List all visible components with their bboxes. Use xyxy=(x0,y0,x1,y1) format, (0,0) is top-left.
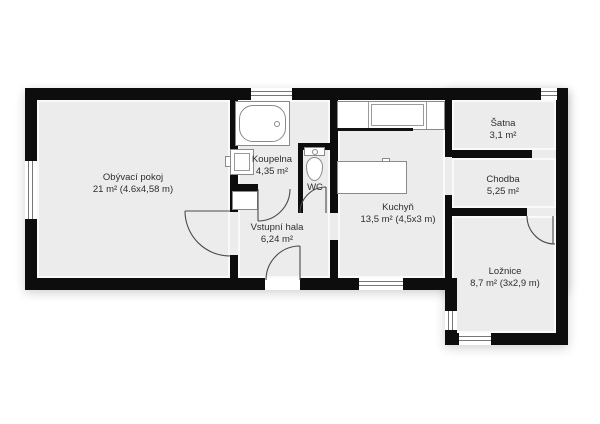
label-loznice: Ložnice 8,7 m² (3x2,9 m) xyxy=(470,266,540,290)
room-name: Chodba xyxy=(486,174,519,186)
room-name: Kuchyň xyxy=(361,202,436,214)
room-area: 13,5 m² (4,5x3 m) xyxy=(361,214,436,226)
door-obyvaci-icon xyxy=(185,211,230,256)
room-name: WC xyxy=(307,182,323,194)
room-name: Koupelna xyxy=(252,154,292,166)
label-koupelna: Koupelna 4,35 m² xyxy=(252,154,292,178)
label-satna: Šatna 3,1 m² xyxy=(490,118,517,142)
door-koupelna-icon xyxy=(258,189,290,221)
floor-plan: Obývací pokoj 21 m² (4.6x4,58 m) Koupeln… xyxy=(0,0,600,424)
door-loznice-icon xyxy=(527,216,555,244)
room-name: Šatna xyxy=(490,118,517,130)
label-wc: WC xyxy=(307,182,323,194)
room-area: 21 m² (4.6x4,58 m) xyxy=(93,184,173,196)
room-name: Obývací pokoj xyxy=(93,172,173,184)
room-name: Vstupní hala xyxy=(251,222,304,234)
label-obyvaci-pokoj: Obývací pokoj 21 m² (4.6x4,58 m) xyxy=(93,172,173,196)
room-name: Ložnice xyxy=(470,266,540,278)
label-kuchyn: Kuchyň 13,5 m² (4,5x3 m) xyxy=(361,202,436,226)
room-area: 3,1 m² xyxy=(490,130,517,142)
room-area: 4,35 m² xyxy=(252,166,292,178)
door-arcs-layer xyxy=(0,0,600,424)
door-entrance-icon xyxy=(266,246,300,280)
label-chodba: Chodba 5,25 m² xyxy=(486,174,519,198)
room-area: 5,25 m² xyxy=(486,186,519,198)
room-area: 8,7 m² (3x2,9 m) xyxy=(470,278,540,290)
label-vstupni-hala: Vstupní hala 6,24 m² xyxy=(251,222,304,246)
room-area: 6,24 m² xyxy=(251,234,304,246)
